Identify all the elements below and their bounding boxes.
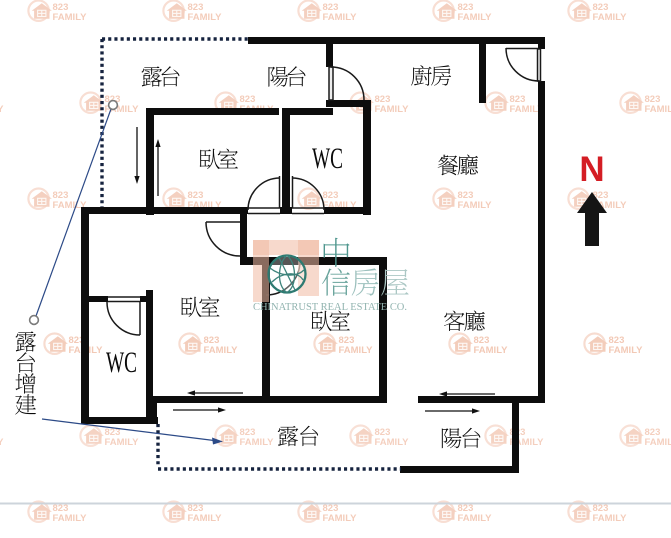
svg-text:WC: WC xyxy=(312,142,343,175)
svg-text:N: N xyxy=(579,150,604,189)
svg-text:CHINATRUST REAL ESTATE CO.: CHINATRUST REAL ESTATE CO. xyxy=(253,301,407,313)
svg-text:WC: WC xyxy=(106,346,137,379)
